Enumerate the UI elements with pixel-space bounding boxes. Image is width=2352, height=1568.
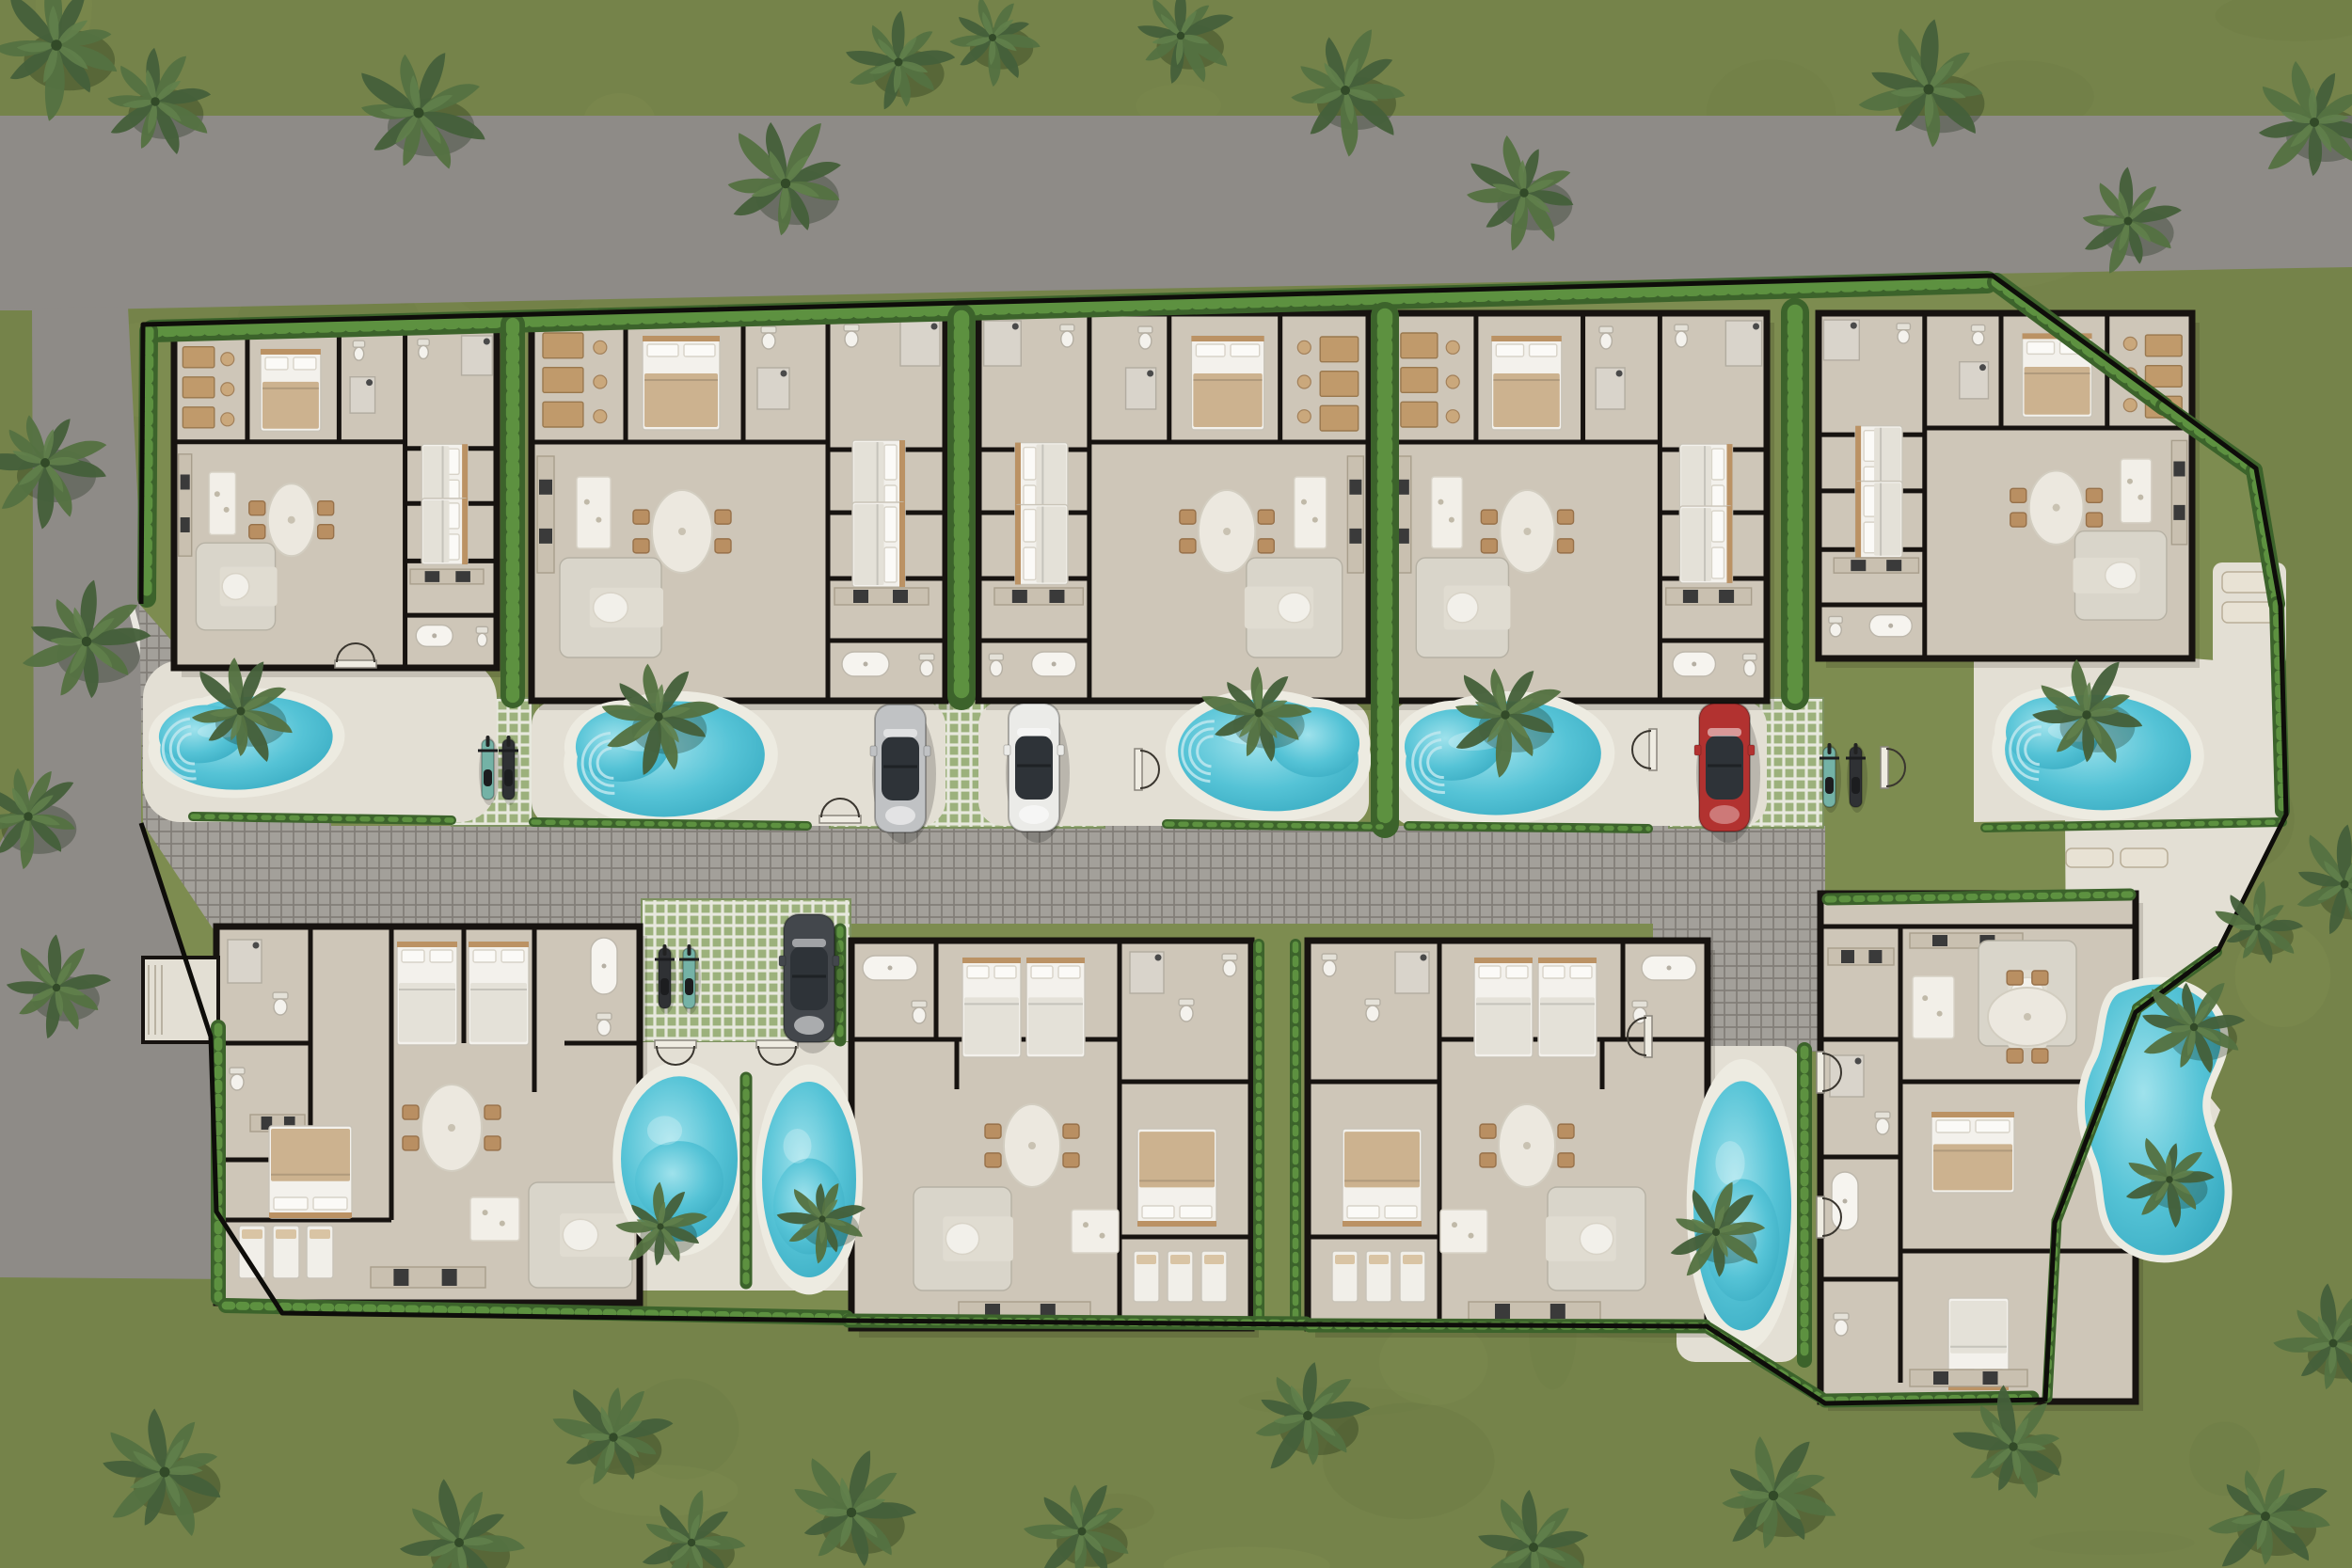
pool [755,1065,863,1295]
hedge [1167,824,1381,827]
hedge [533,822,807,826]
white-car [1004,704,1070,843]
site-plan-svg [0,0,2352,1568]
hedge [193,816,452,820]
hedge [1828,895,2130,899]
hedge [1985,822,2282,828]
dark-car [779,914,845,1053]
villa-t1 [143,329,504,822]
hedge [147,331,149,598]
sun-lounger [2121,848,2168,867]
hedge [1408,826,1648,829]
silver-car [870,705,936,844]
site-plan-rendering [0,0,2352,1568]
red-car [1694,704,1760,843]
sun-lounger [2066,848,2113,867]
